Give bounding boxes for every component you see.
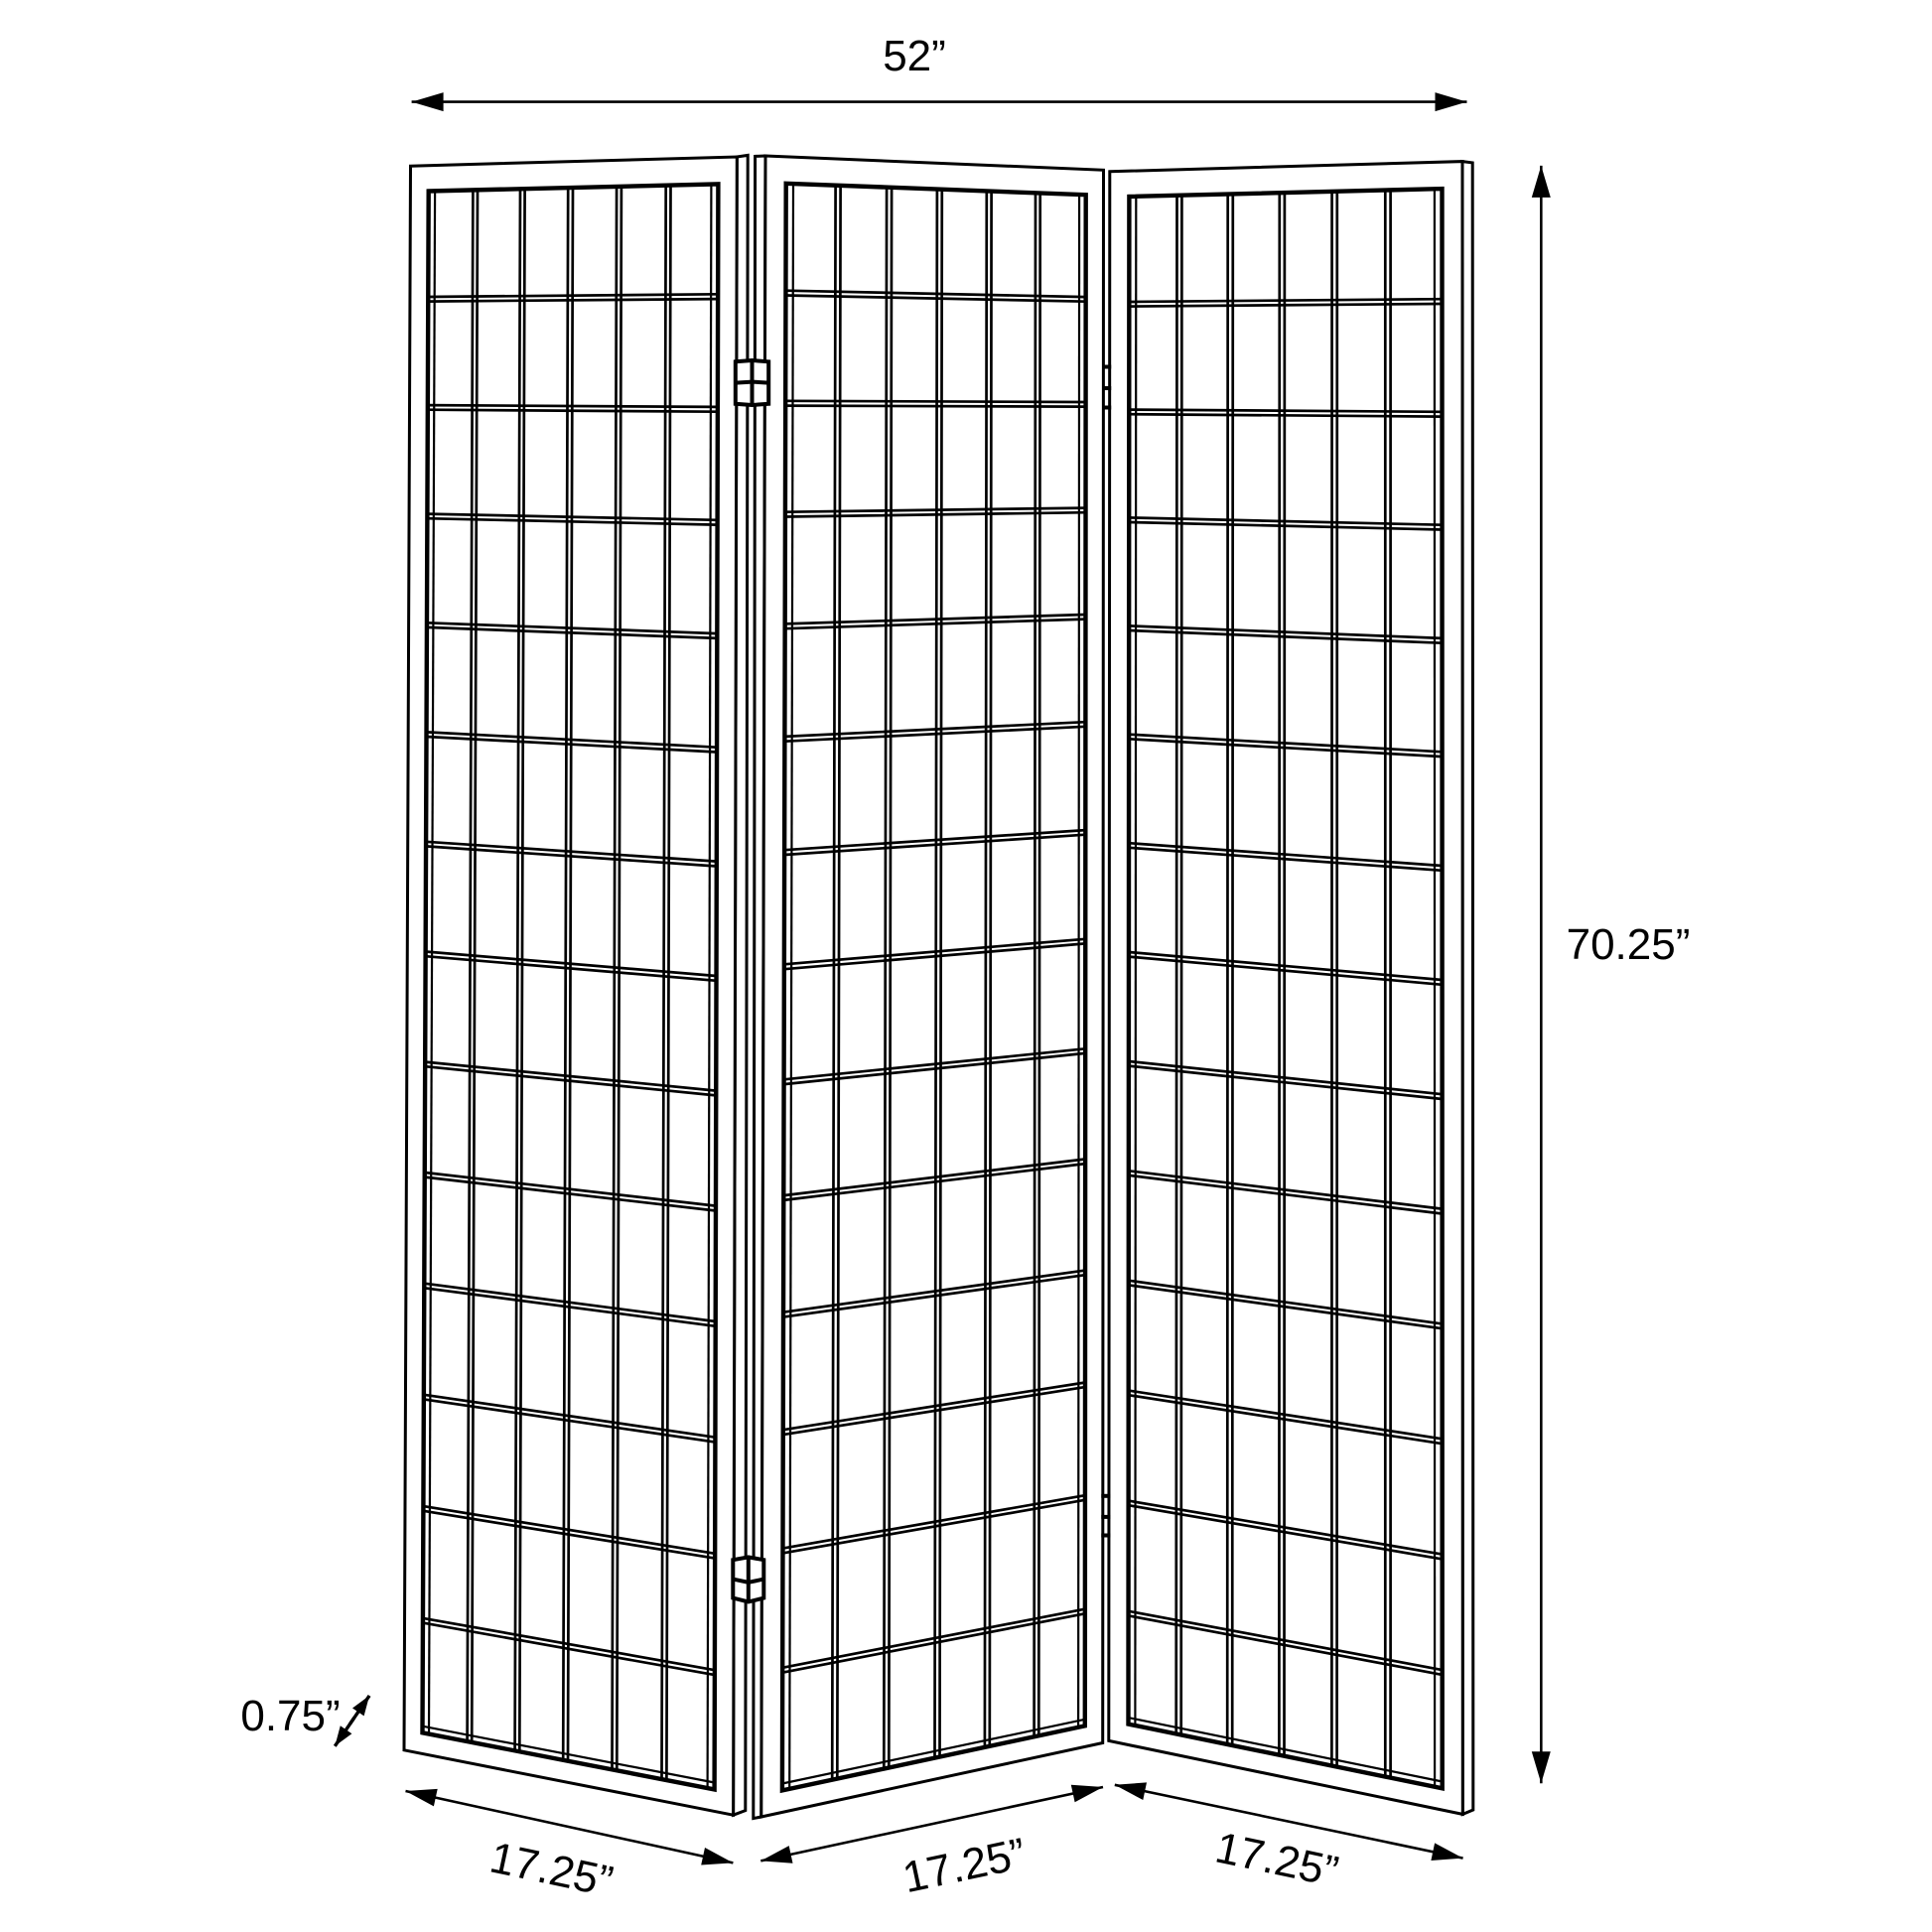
- svg-text:52”: 52”: [883, 32, 946, 80]
- svg-text:0.75”: 0.75”: [240, 1692, 340, 1740]
- svg-text:70.25”: 70.25”: [1567, 920, 1691, 969]
